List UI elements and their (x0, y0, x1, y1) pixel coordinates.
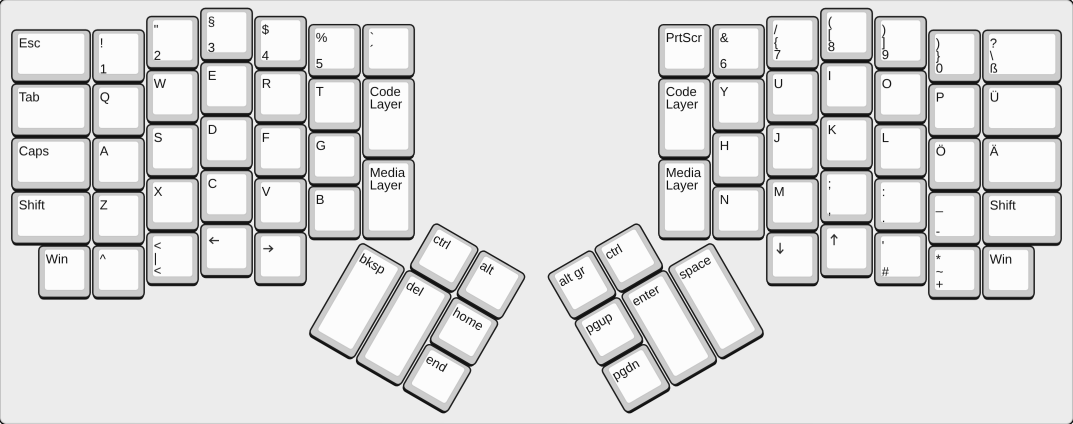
svg-text:': ' (882, 238, 884, 253)
svg-text:%: % (316, 30, 328, 45)
svg-text:^: ^ (100, 251, 107, 266)
svg-text:T: T (316, 84, 324, 99)
svg-text:1: 1 (100, 61, 107, 76)
svg-text:C: C (208, 176, 217, 191)
svg-text:ß: ß (990, 61, 998, 76)
svg-text:Ö: Ö (936, 144, 946, 159)
svg-text:Layer: Layer (666, 178, 699, 193)
svg-text:O: O (882, 76, 892, 91)
svg-text:D: D (208, 122, 217, 137)
svg-text:6: 6 (720, 56, 727, 71)
svg-text:U: U (774, 76, 783, 91)
svg-text:L: L (882, 130, 889, 145)
svg-text:A: A (100, 143, 109, 158)
svg-text:K: K (828, 122, 837, 137)
svg-text:3: 3 (208, 40, 215, 55)
svg-text:-: - (936, 224, 940, 239)
svg-text:Ü: Ü (990, 90, 999, 105)
svg-text:.: . (882, 210, 886, 225)
svg-text:Layer: Layer (370, 97, 403, 112)
svg-text:": " (154, 22, 159, 37)
svg-text:PrtScr: PrtScr (666, 30, 703, 45)
svg-text:Y: Y (720, 84, 729, 99)
svg-text:+: + (936, 277, 944, 292)
svg-text:8: 8 (828, 39, 835, 54)
svg-text:Esc: Esc (19, 35, 41, 50)
svg-text:;: ; (828, 176, 832, 191)
svg-text::: : (882, 184, 886, 199)
svg-text:Z: Z (100, 197, 108, 212)
svg-text:,: , (828, 202, 832, 217)
svg-text:#: # (882, 264, 890, 279)
svg-text:F: F (262, 130, 270, 145)
svg-text:X: X (154, 184, 163, 199)
svg-text:I: I (828, 68, 832, 83)
svg-text:Layer: Layer (666, 97, 699, 112)
svg-text:Layer: Layer (370, 178, 403, 193)
svg-text:4: 4 (262, 48, 269, 63)
svg-text:R: R (262, 76, 271, 91)
svg-text:Win: Win (46, 251, 68, 266)
svg-text:§: § (208, 14, 215, 29)
svg-text:S: S (154, 130, 163, 145)
svg-text:9: 9 (882, 47, 889, 62)
svg-text:G: G (316, 138, 326, 153)
svg-text:V: V (262, 184, 271, 199)
svg-text:J: J (774, 130, 781, 145)
svg-text:2: 2 (154, 48, 161, 63)
svg-text:Shift: Shift (19, 197, 45, 212)
svg-text:E: E (208, 68, 217, 83)
svg-text:H: H (720, 138, 729, 153)
svg-text:!: ! (100, 35, 104, 50)
svg-text:´: ´ (370, 43, 374, 58)
svg-text:Shift: Shift (990, 198, 1016, 213)
svg-text:Caps: Caps (19, 143, 50, 158)
svg-text:Win: Win (990, 252, 1012, 267)
svg-text:N: N (720, 192, 729, 207)
svg-text:Q: Q (100, 89, 110, 104)
svg-text:7: 7 (774, 47, 781, 62)
svg-text:W: W (154, 76, 167, 91)
svg-text:$: $ (262, 22, 270, 37)
svg-text:5: 5 (316, 56, 323, 71)
svg-text:&: & (720, 30, 729, 45)
svg-text:M: M (774, 184, 785, 199)
svg-text:<: < (154, 263, 162, 278)
svg-text:Tab: Tab (19, 89, 40, 104)
svg-text:0: 0 (936, 61, 943, 76)
svg-text:Ä: Ä (990, 144, 999, 159)
svg-text:_: _ (935, 198, 944, 213)
svg-text:B: B (316, 192, 325, 207)
svg-text:P: P (936, 90, 945, 105)
